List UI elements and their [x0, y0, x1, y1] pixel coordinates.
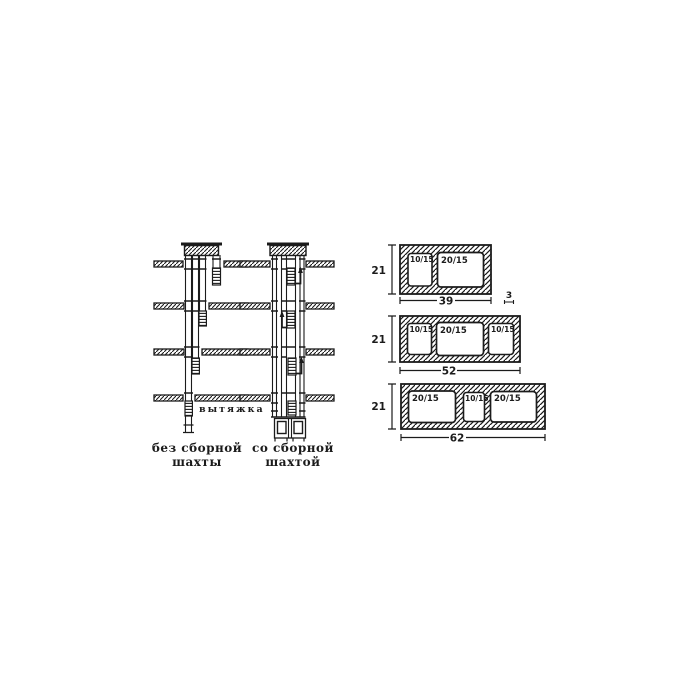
- roof-cap: [181, 244, 222, 256]
- floor-slab-segment: [154, 261, 183, 267]
- block-section-62: 20/15 10/15 20/15 21 62: [371, 384, 545, 445]
- intake-grille: [199, 311, 206, 326]
- width-dim-label: 52: [442, 366, 457, 378]
- collector-grille: [287, 268, 295, 285]
- floor-slab-segment: [154, 395, 183, 401]
- base-opening: [294, 422, 303, 434]
- height-dimension: 21: [371, 245, 396, 294]
- base-opening: [278, 422, 287, 434]
- opening-label: 20/15: [440, 326, 467, 336]
- opening-label: 10/15: [410, 325, 434, 334]
- roof-cap: [267, 244, 309, 256]
- caption-without-line2: шахты: [172, 455, 222, 469]
- opening-label: 20/15: [441, 256, 468, 266]
- height-dimension: 21: [371, 384, 396, 429]
- block-section-52: 10/15 20/15 10/15 21 52: [371, 316, 520, 378]
- height-dim-label: 21: [371, 265, 386, 277]
- caption-with-line2: шахтой: [265, 455, 320, 469]
- floor-slab-segment: [306, 303, 334, 309]
- opening-label: 20/15: [412, 394, 439, 404]
- floor-slab-segment: [306, 261, 334, 267]
- width-dimension: 62: [401, 433, 545, 445]
- block-section-39: 10/15 20/15 21 39 3: [371, 245, 513, 308]
- scanned-figure-ventilation: вытяжка без сборной шахты: [0, 0, 700, 700]
- floor-slab-segment: [306, 395, 334, 401]
- floor-slab-segment: [240, 303, 270, 309]
- base-block: [271, 417, 306, 442]
- floor-slab-segment: [306, 349, 334, 355]
- exhaust-label: вытяжка: [199, 404, 265, 415]
- height-dim-label: 21: [371, 401, 386, 413]
- opening-label: 10/15: [491, 325, 515, 334]
- floor-slabs: [154, 261, 248, 401]
- height-dim-label: 21: [371, 334, 386, 346]
- exhaust-outlet: [183, 425, 194, 433]
- floor-slab-segment: [154, 349, 184, 355]
- floor-slab-segment: [240, 261, 270, 267]
- wall-thickness-dimension: 3: [505, 291, 514, 304]
- wall-thickness-label: 3: [506, 291, 512, 301]
- caption-without-line1: без сборной: [152, 441, 242, 455]
- collector-grille: [288, 358, 296, 375]
- opening-label: 10/15: [465, 394, 489, 403]
- intake-grille: [192, 358, 199, 374]
- intake-grilles: [185, 268, 221, 416]
- collector-grille: [287, 311, 295, 328]
- airflow-arrow: [280, 311, 287, 328]
- collector-grille: [288, 401, 296, 415]
- intake-grille: [213, 268, 221, 285]
- caption-with-line1: со сборной: [252, 441, 334, 455]
- width-dim-label: 62: [450, 433, 465, 445]
- ventilation-diagram-canvas: вытяжка без сборной шахты: [0, 0, 700, 700]
- shaft-without-collector: вытяжка без сборной шахты: [152, 244, 265, 469]
- width-dimension: 52: [400, 366, 520, 378]
- width-dim-label: 39: [439, 296, 454, 308]
- floor-slab-segment: [240, 349, 270, 355]
- intake-grille: [185, 401, 192, 416]
- opening-label: 10/15: [410, 255, 434, 264]
- width-dimension: 39: [400, 296, 491, 308]
- opening-label: 20/15: [494, 394, 521, 404]
- height-dimension: 21: [371, 316, 396, 362]
- floor-slab-segment: [154, 303, 184, 309]
- shaft-with-collector: со сборной шахтой: [240, 244, 334, 469]
- floor-slab-segment: [240, 395, 270, 401]
